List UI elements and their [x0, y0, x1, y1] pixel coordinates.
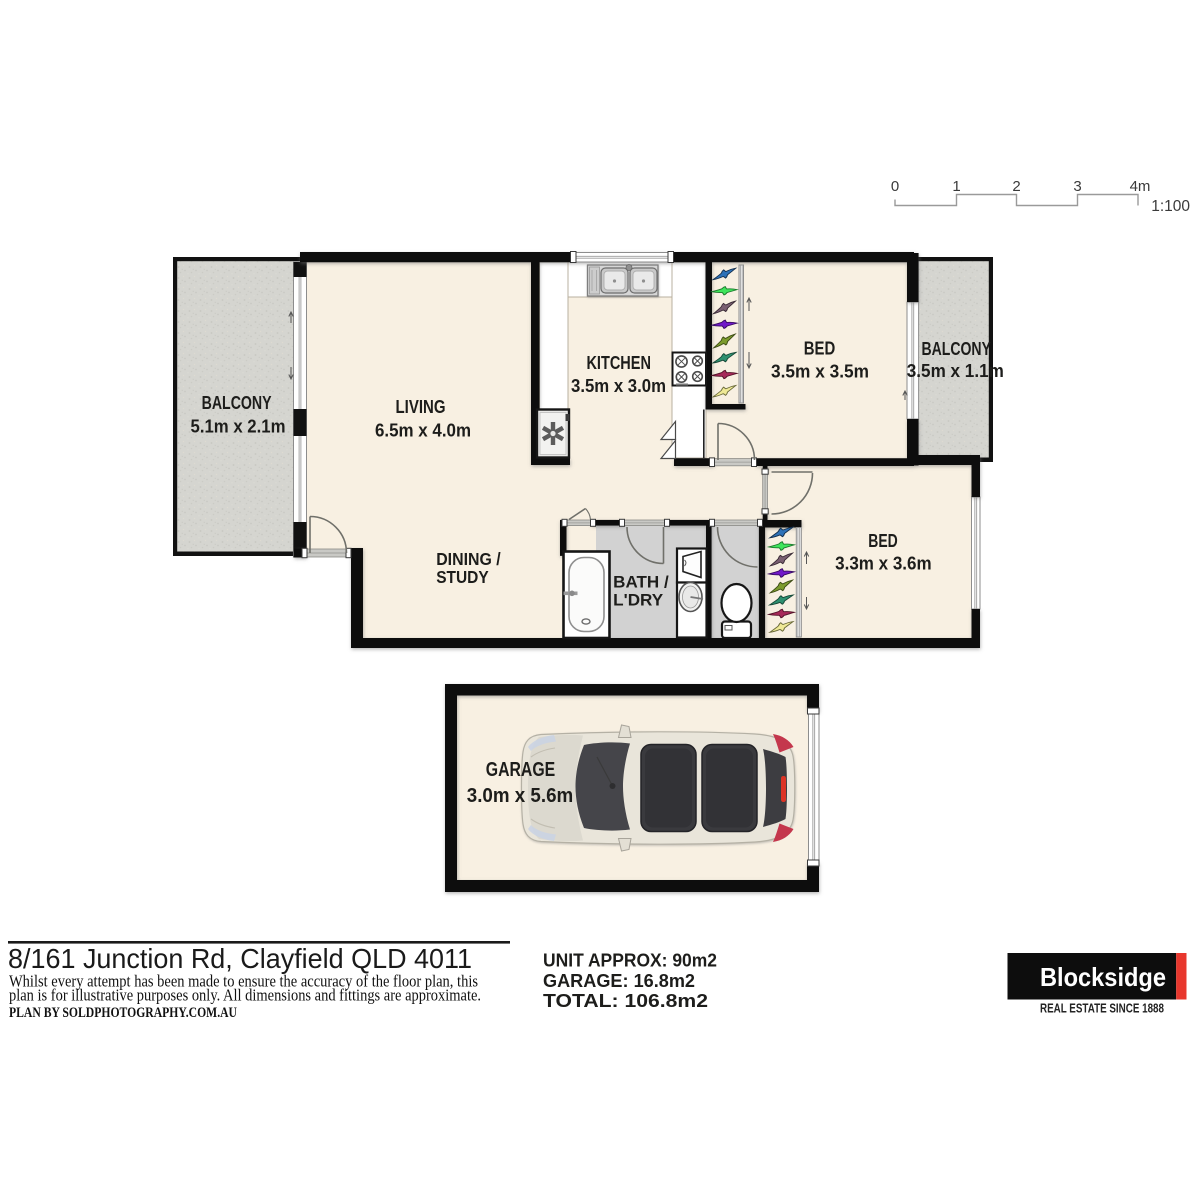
svg-text:TOTAL: 106.8m2: TOTAL: 106.8m2: [543, 990, 708, 1011]
svg-text:Blocksidge: Blocksidge: [1040, 962, 1166, 992]
svg-text:3: 3: [1073, 178, 1081, 195]
svg-text:UNIT APPROX: 90m2: UNIT APPROX: 90m2: [543, 950, 717, 971]
svg-text:LIVING: LIVING: [396, 397, 446, 417]
svg-text:REAL ESTATE SINCE 1888: REAL ESTATE SINCE 1888: [1040, 1001, 1164, 1016]
svg-text:6.5m x 4.0m: 6.5m x 4.0m: [375, 421, 471, 441]
svg-text:KITCHEN: KITCHEN: [586, 353, 651, 373]
svg-text:DINING /: DINING /: [436, 549, 501, 569]
svg-text:0: 0: [891, 178, 899, 195]
svg-text:PLAN BY SOLDPHOTOGRAPHY.COM.AU: PLAN BY SOLDPHOTOGRAPHY.COM.AU: [9, 1005, 237, 1021]
svg-text:BALCONY: BALCONY: [921, 339, 991, 359]
svg-text:3.3m x 3.6m: 3.3m x 3.6m: [835, 554, 932, 574]
svg-text:3.0m x 5.6m: 3.0m x 5.6m: [467, 784, 574, 807]
svg-text:5.1m x 2.1m: 5.1m x 2.1m: [191, 417, 286, 437]
svg-text:2: 2: [1012, 178, 1020, 195]
svg-text:1: 1: [952, 178, 960, 195]
svg-text:8/161 Junction Rd, Clayfield Q: 8/161 Junction Rd, Clayfield QLD 4011: [8, 943, 472, 974]
svg-text:BATH /: BATH /: [613, 574, 669, 592]
svg-text:BED: BED: [868, 531, 898, 551]
svg-text:1:100: 1:100: [1151, 198, 1190, 215]
svg-text:STUDY: STUDY: [436, 567, 489, 587]
svg-text:4m: 4m: [1130, 178, 1151, 195]
svg-text:3.5m x 3.0m: 3.5m x 3.0m: [571, 376, 666, 396]
svg-text:plan is for illustrative purpo: plan is for illustrative purposes only. …: [9, 986, 481, 1005]
svg-text:3.5m x 3.5m: 3.5m x 3.5m: [771, 362, 869, 382]
svg-text:BALCONY: BALCONY: [202, 393, 272, 413]
svg-text:GARAGE: GARAGE: [486, 758, 556, 781]
svg-text:L'DRY: L'DRY: [613, 592, 663, 610]
svg-text:3.5m x 1.1m: 3.5m x 1.1m: [907, 361, 1004, 381]
svg-text:BED: BED: [804, 339, 836, 359]
svg-text:GARAGE: 16.8m2: GARAGE: 16.8m2: [543, 970, 695, 991]
